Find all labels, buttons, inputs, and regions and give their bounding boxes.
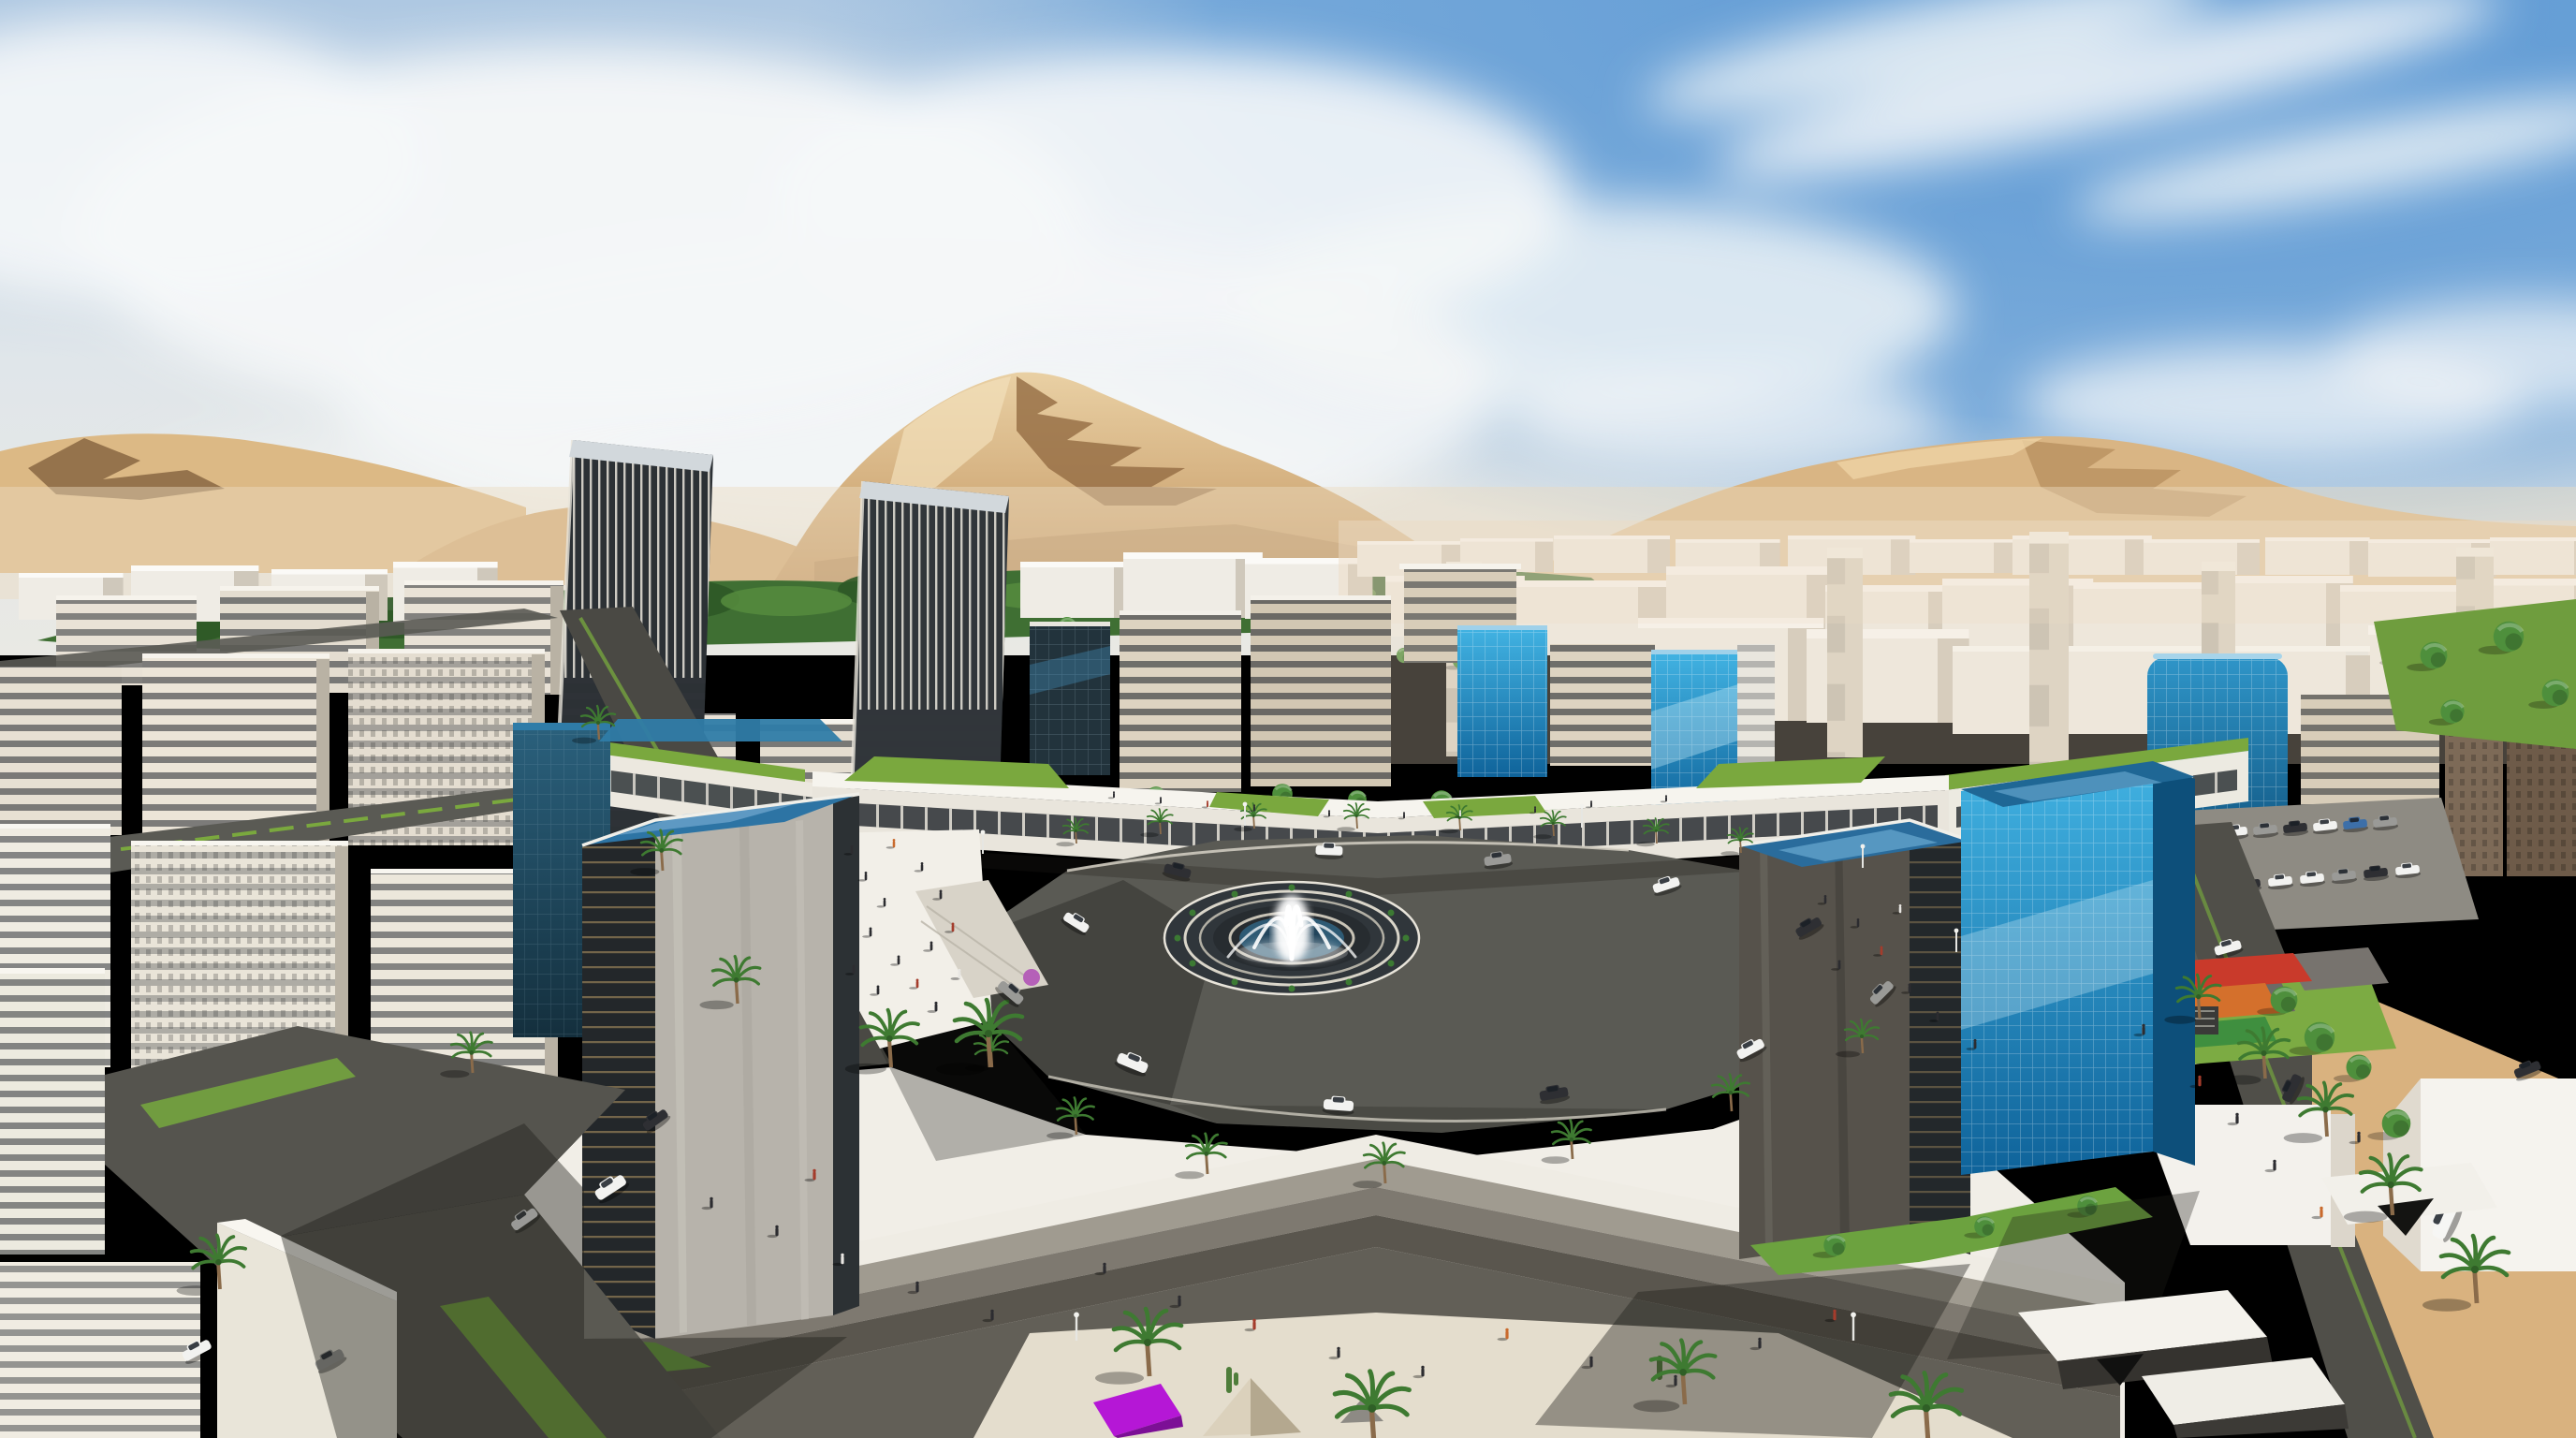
left-concrete-glass-tower xyxy=(582,794,859,1339)
park-lawn xyxy=(2374,599,2576,749)
blue-roof-slab xyxy=(599,719,842,741)
city-render xyxy=(0,0,2576,1438)
background-haze-band xyxy=(1339,521,2576,624)
right-blue-glass-tower xyxy=(1961,761,2195,1175)
bougainvillea xyxy=(1023,969,1040,986)
central-blue-tower-west xyxy=(1457,625,1547,777)
dark-grid-tower xyxy=(1030,622,1110,775)
right-concrete-glass-tower xyxy=(1739,820,1970,1259)
render-viewport: Aerial daytime rendering of a desert mas… xyxy=(0,0,2576,1438)
fountain-roundabout xyxy=(1164,882,1419,994)
